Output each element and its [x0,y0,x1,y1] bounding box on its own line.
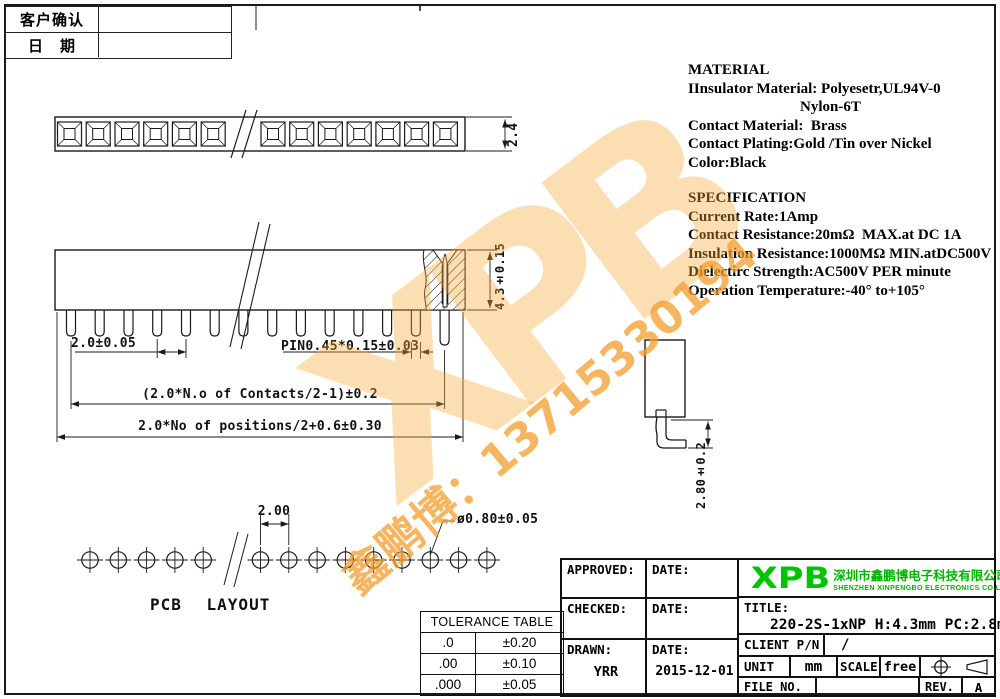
date-label: DATE: [652,562,690,577]
customer-confirm-value-cell [99,7,231,32]
specification-line: Current Rate:1Amp [688,208,991,227]
checked-date-cell: DATE: [647,599,739,640]
tolerance-precision: .00 [421,654,476,674]
drawn-date-cell: DATE: 2015-12-01 [647,640,739,695]
title-block: APPROVED: DATE: CHECKED: DATE: DRAWN: YR… [560,558,996,697]
dim-pin-section-label: PIN0.45*0.15±0.03 [281,339,419,354]
date-row-label: 日 期 [6,33,99,57]
rev-label: REV. [920,678,963,695]
date-row-value-cell [99,33,231,57]
tolerance-precision: .000 [421,675,476,695]
company-name-cn: 深圳市鑫鹏博电子科技有限公司 [833,565,1000,584]
material-line: Color:Black [688,154,941,173]
company-row: XPB 深圳市鑫鹏博电子科技有限公司 SHENZHEN XINPENGBO EL… [739,560,994,598]
material-section: MATERIAL IInsulator Material: Polyesetr,… [688,61,941,172]
tolerance-table: TOLERANCE TABLE .0 ±0.20 .00 ±0.10 .000 … [420,611,564,696]
tolerance-value: ±0.05 [476,675,563,695]
material-line: IInsulator Material: Polyesetr,UL94V-0 [688,80,941,99]
checked-label: CHECKED: [567,601,627,616]
company-names: 深圳市鑫鹏博电子科技有限公司 SHENZHEN XINPENGBO ELECTR… [833,565,1000,592]
title-cell: TITLE: 220-2S-1xNP H:4.3mm PC:2.8mm [739,598,994,635]
tolerance-value: ±0.20 [476,633,563,653]
approved-date-cell: DATE: [647,560,739,599]
specification-line: Contact Resistance:20mΩ MAX.at DC 1A [688,226,991,245]
client-row: CLIENT P/N / [739,635,994,657]
drawn-label: DRAWN: [567,642,645,657]
title-label: TITLE: [744,600,994,615]
tolerance-table-title: TOLERANCE TABLE [421,612,563,633]
checked-cell: CHECKED: [562,599,647,640]
date-label: DATE: [652,642,737,657]
dim-contacts-span-label: (2.0*N.o of Contacts/2-1)±0.2 [95,387,425,402]
customer-confirm-table: 客户确认 日 期 [5,6,232,59]
material-line: Nylon-6T [688,98,941,117]
approved-label: APPROVED: [567,562,635,577]
tolerance-precision: .0 [421,633,476,653]
file-no-value-cell [817,678,920,695]
unit-label: UNIT [739,657,791,676]
tolerance-row: .0 ±0.20 [421,633,563,654]
dim-pcb-pitch-label: 2.00 [250,504,298,519]
tolerance-row: .000 ±0.05 [421,675,563,695]
company-name-en: SHENZHEN XINPENGBO ELECTRONICS CO.LTD [833,585,1000,592]
pcb-layout-caption: PCB LAYOUT [150,595,270,614]
specification-line: Insulation Resistance:1000MΩ MIN.atDC500… [688,245,991,264]
material-line: Contact Plating:Gold /Tin over Nickel [688,135,941,154]
unit-scale-row: UNIT mm SCALE free [739,657,994,678]
drawing-title: 220-2S-1xNP H:4.3mm PC:2.8mm [744,617,994,633]
file-no-row: FILE NO. REV. A [739,678,994,695]
company-logo: XPB [739,561,830,595]
scale-value: free [881,657,921,676]
projection-symbol-icon [921,657,992,677]
client-pn-label: CLIENT P/N [739,635,825,655]
date-label: DATE: [652,601,690,616]
dim-pin-pitch-label: 2.0±0.05 [71,336,136,351]
dim-pcb-hole-dia-label: ø0.80±0.05 [457,512,538,527]
tolerance-row: .00 ±0.10 [421,654,563,675]
dim-positions-span-label: 2.0*No of positions/2+0.6±0.30 [55,419,465,434]
approved-cell: APPROVED: [562,560,647,599]
file-no-label: FILE NO. [739,678,817,695]
drawn-name: YRR [567,664,645,680]
drawn-date: 2015-12-01 [652,664,737,679]
tolerance-value: ±0.10 [476,654,563,674]
material-line: Contact Material: Brass [688,117,941,136]
customer-confirm-label: 客户确认 [6,7,99,32]
material-title: MATERIAL [688,61,941,80]
specification-section: SPECIFICATION Current Rate:1Amp Contact … [688,189,991,300]
specification-line: Dielectirc Strength:AC500V PER minute [688,263,991,282]
scale-label: SCALE [838,657,881,676]
unit-value: mm [791,657,838,676]
client-pn-value: / [825,635,994,655]
rev-value: A [963,678,994,695]
dim-strip-width-label: 2.4 [506,115,521,155]
specification-line: Operation Temperature:-40° to+105° [688,282,991,301]
specification-title: SPECIFICATION [688,189,991,208]
projection-symbols [921,657,994,676]
dim-housing-height-label: 4.3±0.15 [493,250,507,310]
dim-tail-length-label: 2.80±0.2 [694,449,708,509]
drawn-cell: DRAWN: YRR [562,640,647,695]
